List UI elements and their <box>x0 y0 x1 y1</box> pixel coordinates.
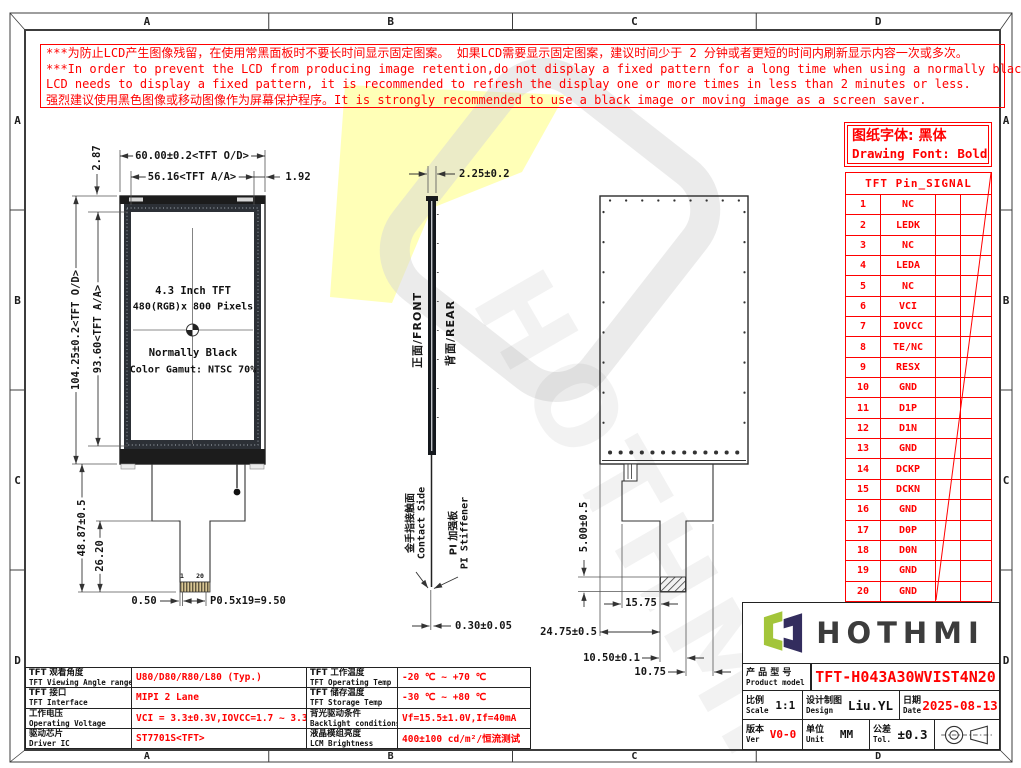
pin-number: 9 <box>846 358 880 377</box>
pin-signal: D0N <box>880 541 935 560</box>
pin-number: 10 <box>846 378 880 397</box>
pin-empty-cell <box>935 358 960 377</box>
pin-empty-cell <box>960 276 991 295</box>
version-unit-tol-row: 版本 Ver V0-0 单位 Unit MM 公差 Tol. ±0.3 <box>743 720 999 749</box>
pin-row: 12D1N <box>846 418 991 438</box>
pin-signal: D0P <box>880 521 935 540</box>
pin-empty-cell <box>935 459 960 478</box>
pin-table-rows: 1NC2LEDK3NC4LEDA5NC6VCI7IOVCC8TE/NC9RESX… <box>845 195 992 602</box>
pin-row: 15DCKN <box>846 479 991 499</box>
spec-label: 液晶模组亮度LCM Brightness <box>306 729 397 748</box>
pin-signal: LEDA <box>880 256 935 275</box>
pin-empty-cell <box>960 337 991 356</box>
pin-empty-cell <box>935 276 960 295</box>
scale-cell: 比例 Scale 1:1 <box>743 691 802 719</box>
dim-tail-length: 26.20 <box>94 538 106 574</box>
version-label-en: Ver <box>746 735 764 744</box>
dim-fpc-thickness: 0.30±0.05 <box>455 620 512 632</box>
version-value: V0-0 <box>764 728 802 741</box>
dim-pin-margin: 0.50 <box>131 595 156 607</box>
pin-number: 5 <box>846 276 880 295</box>
pin-row: 3NC <box>846 235 991 255</box>
font-note-en: Drawing Font: Bold <box>852 146 988 162</box>
side-rear-label: 背面/REAR <box>442 300 458 366</box>
pin-empty-cell <box>960 297 991 316</box>
title-block: HOTHMI 产 品 型 号 Product model TFT-H043A30… <box>742 602 1000 750</box>
spec-value: -20 ℃ ~ +70 ℃ <box>397 668 530 687</box>
spec-label: 工作电压Operating Voltage <box>26 709 131 728</box>
panel-resolution-label: 480(RGB)x 800 Pixels <box>133 302 253 313</box>
scale-label-cn: 比例 <box>746 696 769 706</box>
pin-number: 20 <box>846 582 880 601</box>
spec-value: VCI = 3.3±0.3V,IOVCC=1.7 ~ 3.3V <box>131 709 306 728</box>
unit-label-en: Unit <box>806 735 824 744</box>
pin-signal: VCI <box>880 297 935 316</box>
pin-row: 2LEDK <box>846 214 991 234</box>
date-value: 2025-08-13 <box>921 698 999 713</box>
pin-last-label: 20 <box>196 572 204 580</box>
spec-label: TFT 工作温度TFT Operating Temp <box>306 668 397 687</box>
pin-row: 14DCKP <box>846 458 991 478</box>
zone-label-left-D: D <box>10 570 25 750</box>
pin-empty-cell <box>960 480 991 499</box>
pin-empty-cell <box>935 561 960 580</box>
drawing-page: HOTHMI <box>0 0 1021 768</box>
hothmi-logo-icon <box>757 608 809 658</box>
zone-label-top-D: D <box>756 13 1000 30</box>
pin-signal: GND <box>880 582 935 601</box>
pin-empty-cell <box>960 236 991 255</box>
pin-empty-cell <box>960 195 991 214</box>
pin-empty-cell <box>935 337 960 356</box>
date-cell: 日期 Date 2025-08-13 <box>899 691 999 719</box>
zone-label-left-B: B <box>10 210 25 390</box>
date-label-cn: 日期 <box>903 696 921 706</box>
zone-label-top-A: A <box>25 13 269 30</box>
version-label-cn: 版本 <box>746 725 764 735</box>
zone-band-bottom: ABCD <box>25 750 1000 762</box>
pin-row: 1NC <box>846 195 991 214</box>
pin-empty-cell <box>960 459 991 478</box>
pin-number: 17 <box>846 521 880 540</box>
design-label-en: Design <box>806 706 842 715</box>
spec-label: TFT 观看角度TFT Viewing Angle range <box>26 668 131 687</box>
product-model-label: 产 品 型 号 Product model <box>743 664 811 690</box>
zone-label-left-C: C <box>10 390 25 570</box>
pin-row: 10GND <box>846 377 991 397</box>
pin-empty-cell <box>935 398 960 417</box>
side-view-drawing <box>409 166 458 630</box>
tolerance-cell: 公差 Tol. ±0.3 <box>869 720 934 749</box>
pin-signal: NC <box>880 236 935 255</box>
pin-row: 17D0P <box>846 520 991 540</box>
spec-table: TFT 观看角度TFT Viewing Angle rangeU80/D80/R… <box>25 667 531 749</box>
retention-warning-box: ***为防止LCD产生图像残留，在使用常黑面板时不要长时间显示固定图案。 如果L… <box>40 44 1005 108</box>
zone-label-top-C: C <box>513 13 757 30</box>
pin-empty-cell <box>960 541 991 560</box>
spec-value: MIPI 2 Lane <box>131 688 306 707</box>
pin-signal: GND <box>880 500 935 519</box>
pin-number: 7 <box>846 317 880 336</box>
pin-empty-cell <box>935 439 960 458</box>
third-angle-projection-icon <box>938 723 996 747</box>
panel-mode-label: Normally Black <box>149 347 238 359</box>
pin-signal: TE/NC <box>880 337 935 356</box>
dim-active-height: 93.60<TFT A/A> <box>92 283 104 376</box>
pin-number: 19 <box>846 561 880 580</box>
zone-band-right: ABCD <box>1000 30 1012 750</box>
pin-signal-table: TFT Pin_SIGNAL 1NC2LEDK3NC4LEDA5NC6VCI7I… <box>845 172 992 602</box>
pin-signal: DCKN <box>880 480 935 499</box>
spec-row: 驱动芯片Driver ICST7701S<TFT>液晶模组亮度LCM Brigh… <box>26 728 530 748</box>
zone-label-right-B: B <box>1000 210 1012 390</box>
tolerance-label-cn: 公差 <box>873 725 891 735</box>
pin-number: 15 <box>846 480 880 499</box>
design-cell: 设计制图 Design Liu.YL <box>802 691 899 719</box>
pin-empty-cell <box>935 317 960 336</box>
designer-name: Liu.YL <box>842 698 899 713</box>
pin-empty-cell <box>960 419 991 438</box>
zone-label-bottom-A: A <box>25 750 269 762</box>
dim-fpc-length: 48.87±0.5 <box>76 498 88 559</box>
product-label-cn: 产 品 型 号 <box>746 668 805 678</box>
unit-cell: 单位 Unit MM <box>802 720 869 749</box>
pin-empty-cell <box>960 398 991 417</box>
brand-name: HOTHMI <box>816 616 985 650</box>
pin-row: 20GND <box>846 581 991 601</box>
projection-symbol-cell <box>934 720 999 749</box>
pin-number: 11 <box>846 398 880 417</box>
pin-empty-cell <box>960 582 991 601</box>
pi-stiffener-label-cn: PI 加强板 <box>445 511 460 556</box>
warning-line: ***为防止LCD产生图像残留，在使用常黑面板时不要长时间显示固定图案。 如果L… <box>46 46 999 62</box>
pi-stiffener-label-en: PI Stiffener <box>460 497 471 569</box>
pin-empty-cell <box>935 500 960 519</box>
font-note-cn: 图纸字体: 黑体 <box>852 127 988 146</box>
pin-number: 4 <box>846 256 880 275</box>
unit-value: MM <box>824 728 869 741</box>
spec-row: TFT 接口TFT InterfaceMIPI 2 LaneTFT 储存温度TF… <box>26 687 530 707</box>
spec-value: -30 ℃ ~ +80 ℃ <box>397 688 530 707</box>
spec-row: 工作电压Operating VoltageVCI = 3.3±0.3V,IOVC… <box>26 708 530 728</box>
pin-empty-cell <box>960 358 991 377</box>
pin-signal: GND <box>880 378 935 397</box>
dim-top-margin: 2.87 <box>91 145 103 170</box>
unit-label-cn: 单位 <box>806 725 824 735</box>
warning-line: 强烈建议使用黑色图像或移动图像作为屏幕保护程序。It is strongly r… <box>46 93 999 109</box>
logo-area: HOTHMI <box>743 603 999 664</box>
pin-row: 16GND <box>846 499 991 519</box>
spec-label: 背光驱动条件Backlight conditions <box>306 709 397 728</box>
design-label-cn: 设计制图 <box>806 696 842 706</box>
pin-signal: GND <box>880 561 935 580</box>
pin-empty-cell <box>960 521 991 540</box>
dim-pin-pitch: P0.5x19=9.50 <box>210 595 286 607</box>
zone-label-right-D: D <box>1000 570 1012 750</box>
drawing-font-note-inner: 图纸字体: 黑体 Drawing Font: Bold <box>847 125 989 164</box>
pin-row: 8TE/NC <box>846 336 991 356</box>
pin-signal: NC <box>880 276 935 295</box>
dim-outline-height: 104.25±0.2<TFT O/D> <box>70 268 82 392</box>
pin-row: 5NC <box>846 275 991 295</box>
dim-fpc-width: 24.75±0.5 <box>540 626 597 638</box>
pin-empty-cell <box>935 378 960 397</box>
side-front-label: 正面/FRONT <box>409 292 425 368</box>
zone-label-left-A: A <box>10 30 25 210</box>
pin-number: 6 <box>846 297 880 316</box>
dim-comp-offset: 15.75 <box>623 597 659 609</box>
spec-label: TFT 储存温度TFT Storage Temp <box>306 688 397 707</box>
zone-label-bottom-B: B <box>269 750 513 762</box>
pin-empty-cell <box>935 215 960 234</box>
scale-value: 1:1 <box>769 699 802 712</box>
tolerance-label-en: Tol. <box>873 735 891 744</box>
pin-row: 4LEDA <box>846 255 991 275</box>
pin-empty-cell <box>935 236 960 255</box>
scale-label-en: Scale <box>746 706 769 715</box>
pin-empty-cell <box>935 541 960 560</box>
pin-row: 7IOVCC <box>846 316 991 336</box>
drawing-font-note: 图纸字体: 黑体 Drawing Font: Bold <box>844 122 992 167</box>
pin-row: 9RESX <box>846 357 991 377</box>
pin-empty-cell <box>960 378 991 397</box>
product-label-en: Product model <box>746 678 805 687</box>
product-model-value: TFT-H043A30WVIST4N20 <box>812 668 999 686</box>
pin-empty-cell <box>960 500 991 519</box>
pin-empty-cell <box>960 256 991 275</box>
pin-empty-cell <box>960 317 991 336</box>
spec-label: TFT 接口TFT Interface <box>26 688 131 707</box>
contact-side-label-cn: 金手指接触面 <box>402 493 417 553</box>
dim-active-width: 56.16<TFT A/A> <box>146 171 239 183</box>
warning-line: ***In order to prevent the LCD from prod… <box>46 62 999 78</box>
dim-outline-width: 60.00±0.2<TFT O/D> <box>133 150 251 162</box>
pin-signal: RESX <box>880 358 935 377</box>
spec-label: 驱动芯片Driver IC <box>26 729 131 748</box>
pin-signal: D1N <box>880 419 935 438</box>
pin-empty-cell <box>960 439 991 458</box>
pin-number: 14 <box>846 459 880 478</box>
pin-empty-cell <box>960 561 991 580</box>
spec-value: U80/D80/R80/L80 (Typ.) <box>131 668 306 687</box>
dim-thickness: 2.25±0.2 <box>459 168 510 180</box>
pin-signal: GND <box>880 439 935 458</box>
dim-tail-right-offset: 10.75 <box>634 666 666 678</box>
pin-empty-cell <box>935 480 960 499</box>
dim-tail-width: 10.50±0.1 <box>583 652 640 664</box>
pin-number: 13 <box>846 439 880 458</box>
zone-band-left: ABCD <box>10 30 25 750</box>
warning-line: LCD needs to display a fixed pattern, it… <box>46 77 999 93</box>
zone-label-bottom-C: C <box>513 750 757 762</box>
pin-empty-cell <box>935 419 960 438</box>
pin-signal: DCKP <box>880 459 935 478</box>
panel-size-label: 4.3 Inch TFT <box>155 285 231 297</box>
tolerance-value: ±0.3 <box>891 727 934 742</box>
pin-number: 2 <box>846 215 880 234</box>
spec-value: ST7701S<TFT> <box>131 729 306 748</box>
zone-band-top: ABCD <box>25 13 1000 30</box>
pin-empty-cell <box>960 215 991 234</box>
zone-label-right-C: C <box>1000 390 1012 570</box>
dim-right-margin: 1.92 <box>285 171 310 183</box>
product-model-row: 产 品 型 号 Product model TFT-H043A30WVIST4N… <box>743 664 999 691</box>
spec-row: TFT 观看角度TFT Viewing Angle rangeU80/D80/R… <box>26 668 530 687</box>
version-cell: 版本 Ver V0-0 <box>743 720 802 749</box>
pin-first-label: 1 <box>180 572 184 580</box>
spec-value: 400±100 cd/m²/恒流测试 <box>397 729 530 748</box>
pin-signal: NC <box>880 195 935 214</box>
pin-number: 12 <box>846 419 880 438</box>
date-label-en: Date <box>903 706 921 715</box>
pin-empty-cell <box>935 256 960 275</box>
pin-row: 18D0N <box>846 540 991 560</box>
spec-value: Vf=15.5±1.0V,If=40mA <box>397 709 530 728</box>
contact-side-label-en: Contact Side <box>417 487 428 559</box>
zone-label-bottom-D: D <box>756 750 1000 762</box>
pin-empty-cell <box>935 195 960 214</box>
rear-view-drawing <box>578 196 748 676</box>
pin-row: 13GND <box>846 438 991 458</box>
zone-label-top-B: B <box>269 13 513 30</box>
pin-empty-cell <box>935 297 960 316</box>
panel-gamut-label: Color Gamut: NTSC 70% <box>130 365 256 376</box>
pin-empty-cell <box>935 521 960 540</box>
pin-signal: IOVCC <box>880 317 935 336</box>
pin-empty-cell <box>935 582 960 601</box>
pin-row: 11D1P <box>846 397 991 417</box>
pin-number: 18 <box>846 541 880 560</box>
pin-row: 19GND <box>846 560 991 580</box>
pin-signal: LEDK <box>880 215 935 234</box>
pin-number: 3 <box>846 236 880 255</box>
pin-number: 1 <box>846 195 880 214</box>
dim-stiffener-height: 5.00±0.5 <box>578 500 590 555</box>
scale-design-date-row: 比例 Scale 1:1 设计制图 Design Liu.YL 日期 Date … <box>743 691 999 720</box>
pin-number: 8 <box>846 337 880 356</box>
pin-table-title: TFT Pin_SIGNAL <box>845 172 992 195</box>
pin-signal: D1P <box>880 398 935 417</box>
pin-row: 6VCI <box>846 296 991 316</box>
pin-number: 16 <box>846 500 880 519</box>
